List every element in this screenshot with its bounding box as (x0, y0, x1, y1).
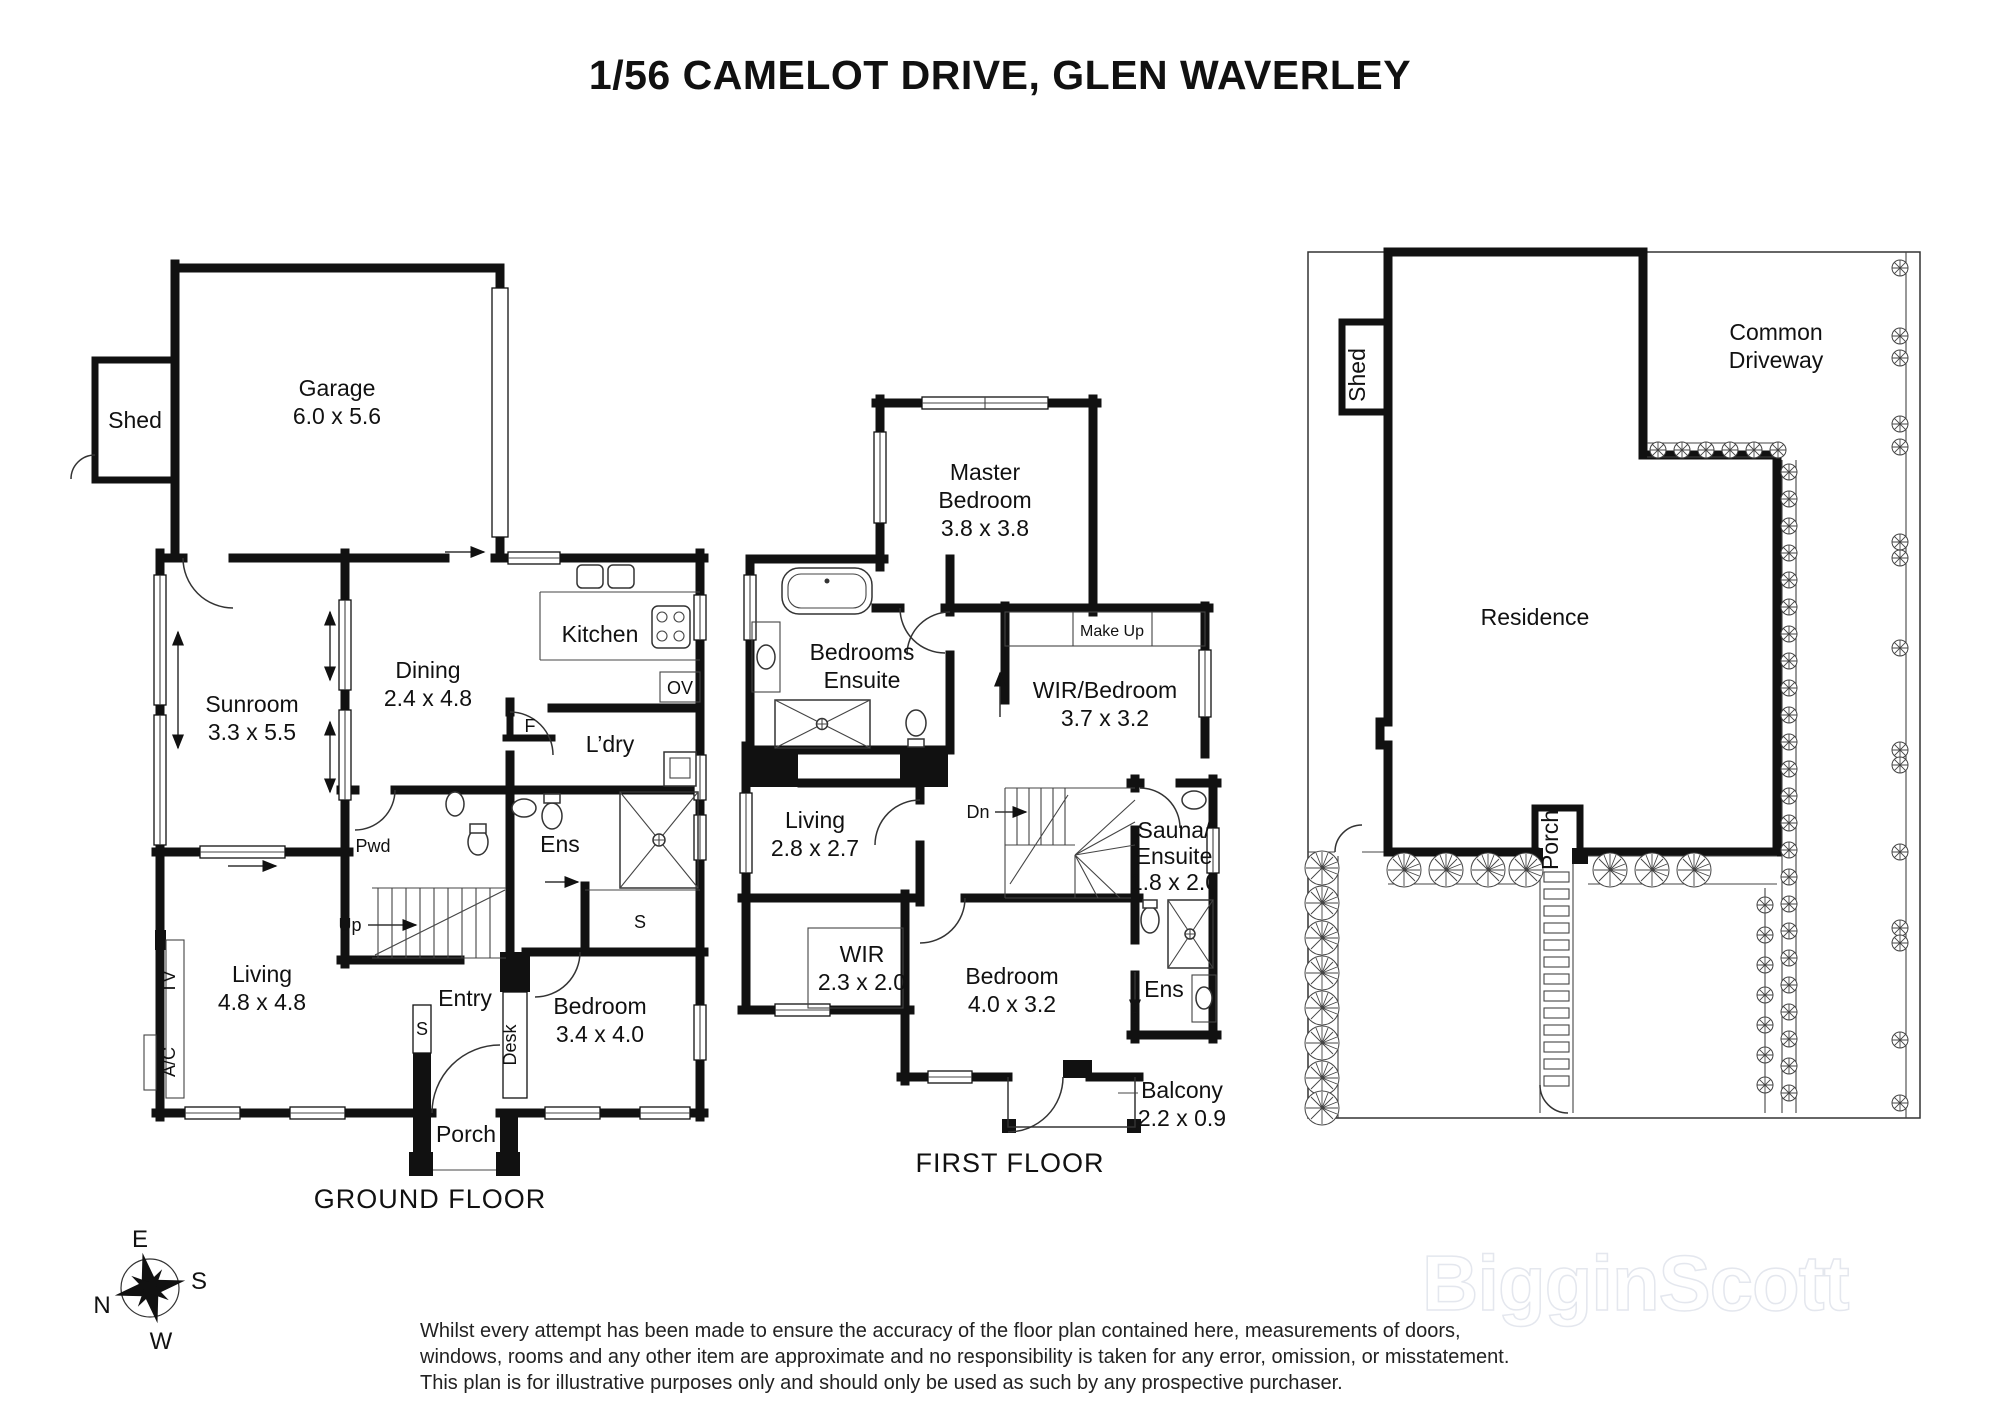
agency-watermark: BigginScott (1422, 1238, 1849, 1329)
label-store-ens: S (634, 912, 646, 932)
label-wirbed: WIR/Bedroom (1033, 677, 1177, 703)
site-plan: Shed Common Driveway Residence Porch (1305, 252, 1920, 1125)
ens2-shower (1168, 900, 1213, 968)
disclaimer-line-3: This plan is for illustrative purposes o… (420, 1370, 1660, 1396)
floorplan-page: 1/56 CAMELOT DRIVE, GLEN WAVERLEY (0, 0, 2000, 1414)
label-master2: Bedroom (938, 487, 1031, 513)
label-wir-dims: 2.3 x 2.0 (818, 969, 906, 995)
ensuite-toilet (906, 710, 926, 747)
label-kitchen: Kitchen (562, 621, 639, 647)
compass-s: S (191, 1268, 207, 1295)
label-garage: Garage (299, 375, 376, 401)
disclaimer-text: Whilst every attempt has been made to en… (420, 1318, 1660, 1396)
compass-rose: E S N W (93, 1226, 207, 1355)
site-labels: Shed Common Driveway Residence Porch (1344, 319, 1824, 870)
ensuite-shower (775, 700, 870, 748)
label-dining: Dining (395, 657, 460, 683)
label-ff-living: Living (785, 807, 845, 833)
cooktop (652, 606, 690, 648)
label-desk: Desk (500, 1023, 520, 1065)
label-living-dims: 4.8 x 4.8 (218, 989, 306, 1015)
label-garage-dims: 6.0 x 5.6 (293, 403, 381, 429)
label-fridge: F (525, 716, 536, 736)
label-tv: TV (159, 970, 179, 993)
label-balcony: Balcony (1141, 1077, 1223, 1103)
label-master-dims: 3.8 x 3.8 (941, 515, 1029, 541)
ground-floor-plan: Shed Garage 6.0 x 5.6 Sunroom 3.3 x 5.5 … (71, 264, 706, 1214)
stairs-down (1005, 788, 1135, 898)
label-bensuite2: Ensuite (824, 667, 901, 693)
page-title: 1/56 CAMELOT DRIVE, GLEN WAVERLEY (0, 52, 2000, 99)
label-makeup: Make Up (1080, 623, 1144, 640)
label-balcony-dims: 2.2 x 0.9 (1138, 1105, 1226, 1131)
label-bedroom-dims: 3.4 x 4.0 (556, 1021, 644, 1047)
label-up: Up (338, 915, 361, 935)
site-boundary (1308, 252, 1920, 1118)
label-dining-dims: 2.4 x 4.8 (384, 685, 472, 711)
label-ens: Ens (540, 831, 580, 857)
label-sauna2: Ensuite (1136, 843, 1213, 869)
sauna-sink (1182, 791, 1206, 809)
label-wirbed-dims: 3.7 x 3.2 (1061, 705, 1149, 731)
compass-e: E (132, 1226, 148, 1253)
label-store-hall: S (416, 1019, 428, 1039)
label-residence: Residence (1481, 604, 1590, 630)
site-trees (1305, 851, 1777, 1125)
label-ff-ens: Ens (1144, 976, 1184, 1002)
compass-n: N (93, 1292, 110, 1319)
residence-outline (1342, 252, 1777, 852)
label-sunroom-dims: 3.3 x 5.5 (208, 719, 296, 745)
label-sunroom: Sunroom (205, 691, 298, 717)
bath (782, 568, 872, 614)
label-ff-living-dims: 2.8 x 2.7 (771, 835, 859, 861)
label-wir: WIR (840, 941, 885, 967)
kitchen-sink (577, 565, 603, 588)
disclaimer-line-2: windows, rooms and any other item are ap… (420, 1344, 1660, 1370)
compass-w: W (150, 1328, 173, 1355)
pwd-toilet (468, 824, 488, 855)
label-site-porch: Porch (1537, 810, 1563, 870)
label-sauna-dims: 1.8 x 2.0 (1130, 869, 1218, 895)
first-floor-title: FIRST FLOOR (915, 1148, 1104, 1178)
label-master1: Master (950, 459, 1021, 485)
label-oven: OV (667, 678, 693, 698)
label-ff-bedroom-dims: 4.0 x 3.2 (968, 991, 1056, 1017)
label-laundry: L’dry (586, 731, 635, 757)
floorplan-drawing: Shed Garage 6.0 x 5.6 Sunroom 3.3 x 5.5 … (0, 0, 2000, 1414)
label-sauna1: Sauna/ (1138, 817, 1212, 843)
ens2-toilet (1141, 900, 1159, 933)
ens-toilet (542, 794, 562, 829)
laundry-trough (664, 752, 696, 786)
label-ac: A/C (159, 1047, 179, 1077)
label-powder: Pwd (355, 836, 390, 856)
label-bensuite1: Bedrooms (810, 639, 915, 665)
ens-shower (620, 792, 698, 888)
balcony-rail (1008, 1077, 1138, 1127)
label-bedroom: Bedroom (553, 993, 646, 1019)
disclaimer-line-1: Whilst every attempt has been made to en… (420, 1318, 1660, 1344)
label-ff-bedroom: Bedroom (965, 963, 1058, 989)
label-porch: Porch (436, 1121, 496, 1147)
pwd-sink (446, 792, 464, 816)
ac-unit (144, 1035, 156, 1090)
label-common1: Common (1729, 319, 1822, 345)
label-shed: Shed (108, 407, 162, 433)
stairs-up (372, 888, 506, 958)
wir-closet (808, 928, 903, 1008)
ens-sink (512, 799, 536, 817)
site-porch (1527, 848, 1588, 1113)
label-dn: Dn (966, 802, 989, 822)
label-common2: Driveway (1729, 347, 1824, 373)
label-entry: Entry (438, 985, 492, 1011)
ground-floor-title: GROUND FLOOR (314, 1184, 547, 1214)
garage-door (492, 288, 508, 537)
label-site-shed: Shed (1344, 348, 1370, 402)
first-floor-plan: Master Bedroom 3.8 x 3.8 Bedrooms Ensuit… (740, 397, 1226, 1178)
first-floor-labels: Master Bedroom 3.8 x 3.8 Bedrooms Ensuit… (771, 459, 1226, 1178)
label-living: Living (232, 961, 292, 987)
